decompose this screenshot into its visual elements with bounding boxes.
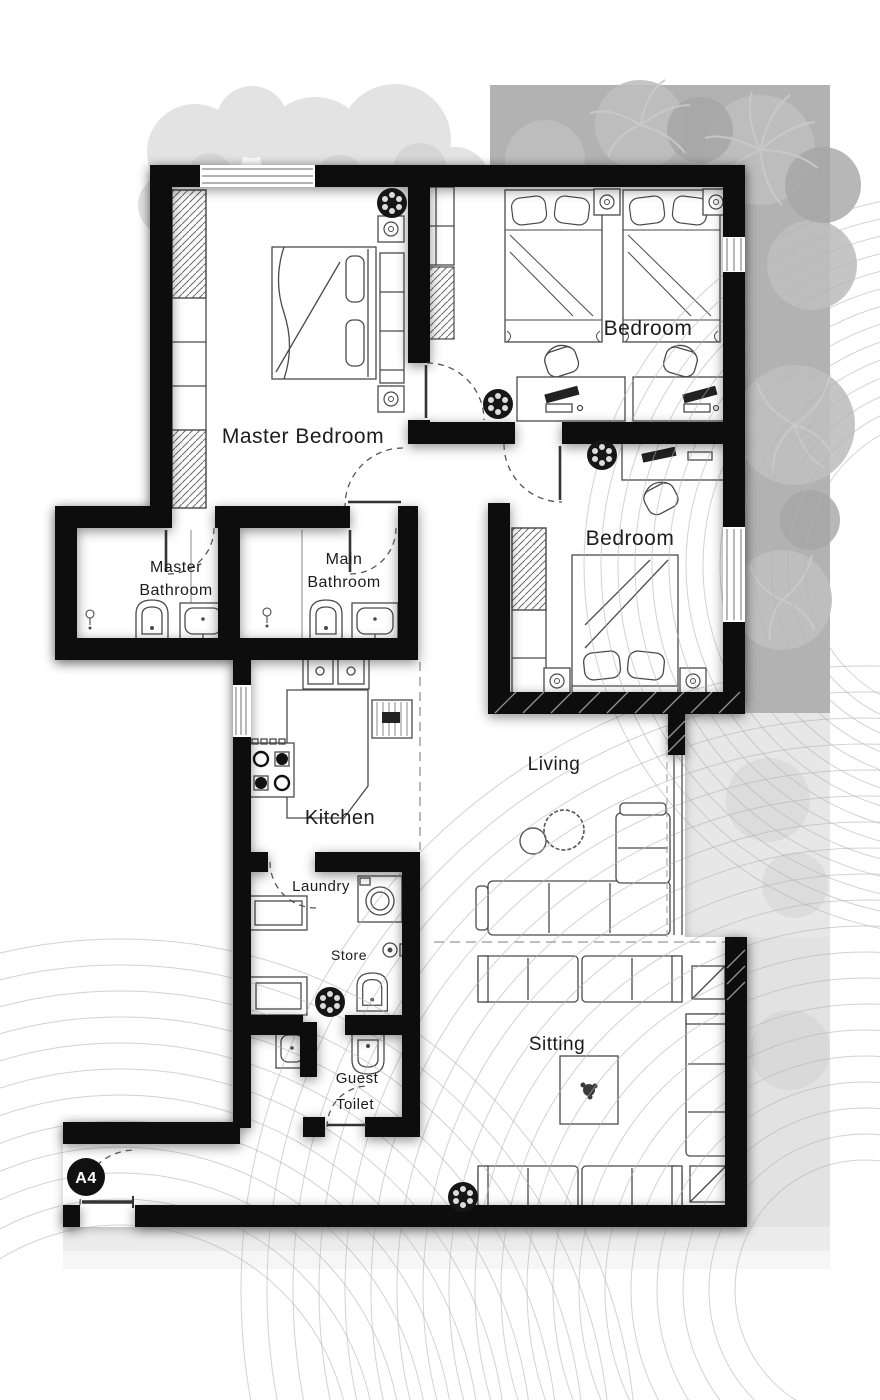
floor-plan-page: Master Bedroom Bedroom Bedroom Master Ba… — [0, 0, 880, 1400]
room-label-bedroom-top: Bedroom — [604, 317, 693, 340]
room-label-guest-toilet-line1: Guest — [336, 1070, 379, 1087]
fan-icon — [587, 440, 617, 470]
fan-icon — [377, 188, 407, 218]
entrance-marker: A4 — [67, 1158, 105, 1196]
entrance-marker-label: A4 — [75, 1170, 96, 1187]
room-label-master-bathroom-line1: Master — [150, 559, 202, 576]
fan-icon — [315, 987, 345, 1017]
room-label-sitting: Sitting — [529, 1034, 585, 1055]
room-label-laundry: Laundry — [292, 878, 350, 895]
room-label-bedroom-middle: Bedroom — [586, 527, 675, 550]
room-label-main-bathroom-line2: Bathroom — [307, 574, 380, 591]
room-label-store: Store — [331, 947, 367, 963]
fan-icon — [448, 1182, 478, 1212]
room-label-main-bathroom-line1: Main — [326, 551, 363, 568]
floor-plan: Master Bedroom Bedroom Bedroom Master Ba… — [0, 0, 880, 1400]
room-label-master-bathroom-line2: Bathroom — [139, 582, 212, 599]
room-label-guest-toilet-line2: Toilet — [336, 1096, 374, 1113]
room-label-master-bedroom: Master Bedroom — [222, 425, 384, 448]
room-label-living: Living — [528, 754, 581, 775]
room-label-kitchen: Kitchen — [305, 807, 375, 829]
fan-icon — [483, 389, 513, 419]
